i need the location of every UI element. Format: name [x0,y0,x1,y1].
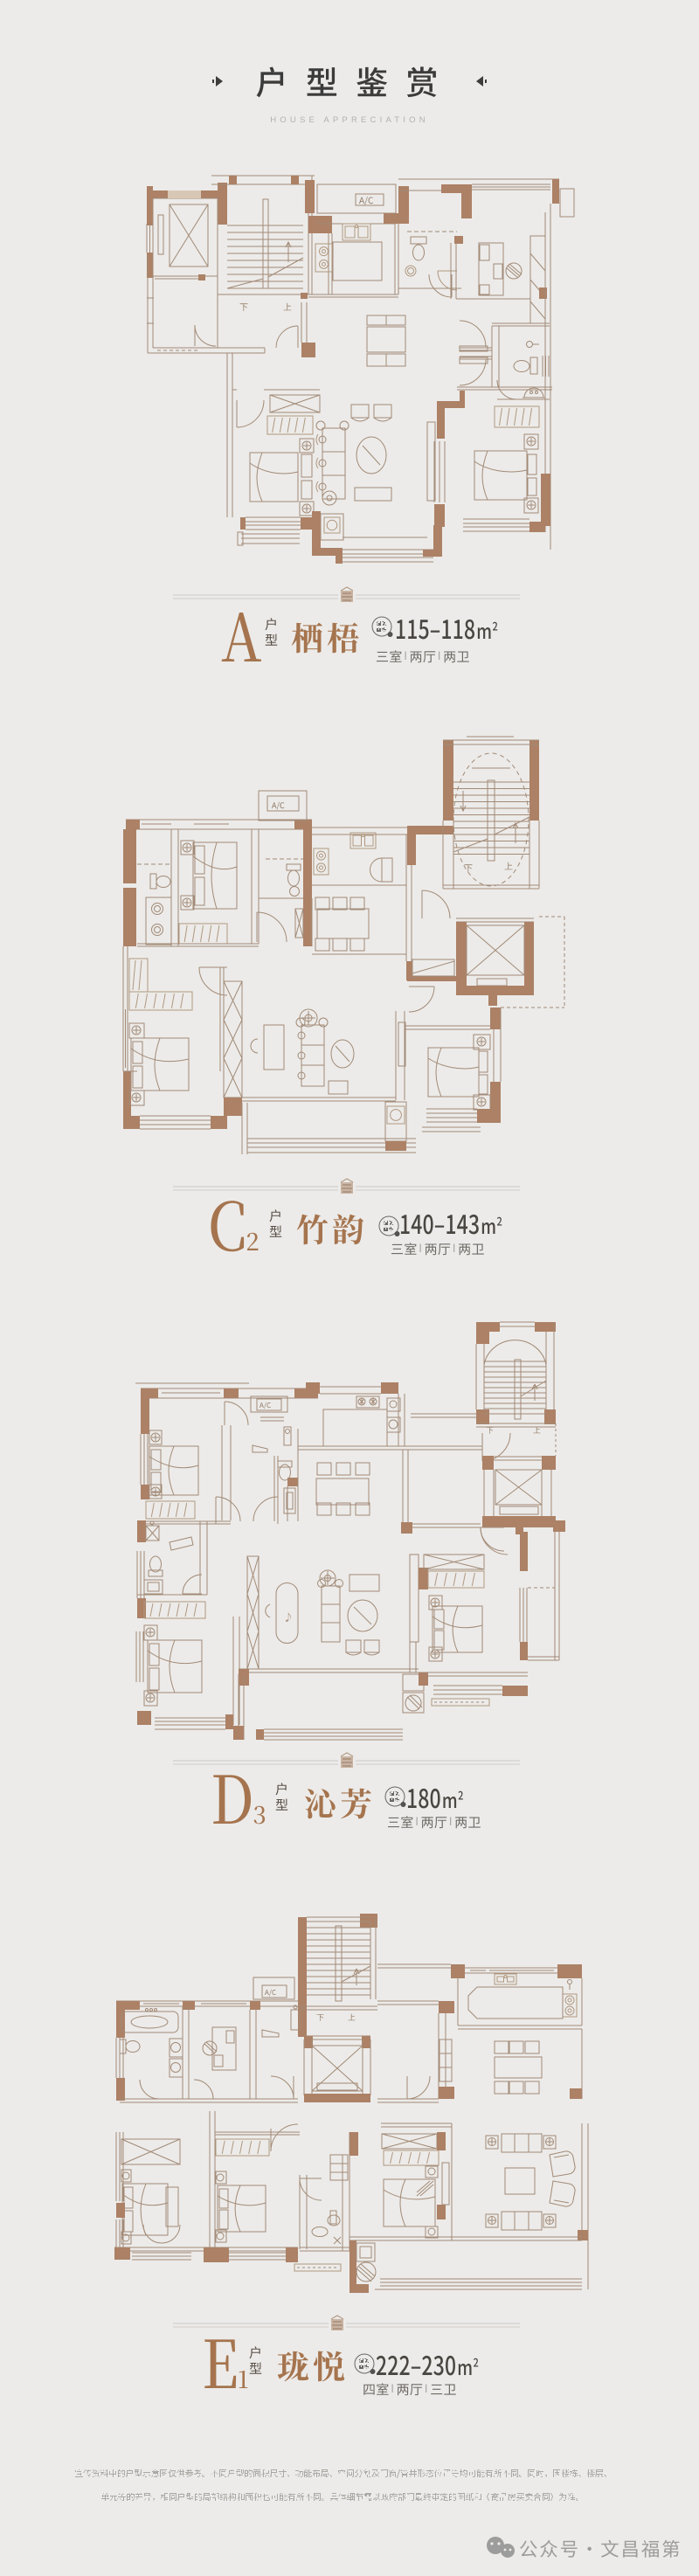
svg-text:HOUSE APPRECIATION: HOUSE APPRECIATION [270,115,429,125]
